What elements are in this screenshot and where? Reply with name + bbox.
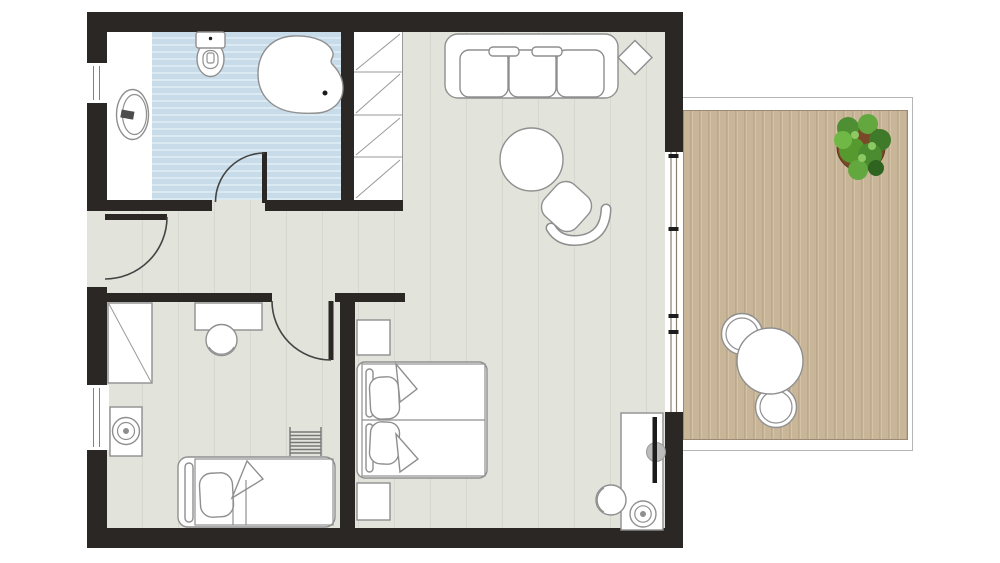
kids-lamp-table bbox=[110, 407, 142, 456]
sliding-door-handle bbox=[669, 314, 679, 318]
terrace-table bbox=[737, 328, 803, 394]
kids-room-door bbox=[272, 301, 334, 360]
terrace-seating bbox=[722, 314, 804, 428]
closet-shelves bbox=[354, 34, 402, 198]
door-swing-arc bbox=[272, 301, 331, 360]
sofa-pillow bbox=[532, 47, 562, 56]
pillow bbox=[369, 376, 400, 419]
plant-highlight bbox=[851, 131, 859, 139]
door-swing-arc bbox=[105, 217, 167, 279]
door-swing-arc bbox=[216, 153, 265, 202]
toilet-button bbox=[209, 37, 212, 40]
sliding-door-handle bbox=[669, 227, 679, 231]
entry-door bbox=[105, 214, 167, 279]
shelf-diagonal bbox=[356, 74, 400, 113]
floor-plan bbox=[0, 0, 1000, 563]
side-table-diamond bbox=[618, 41, 652, 75]
shelf-diagonal bbox=[356, 34, 400, 70]
headboard-bolster bbox=[185, 463, 193, 522]
kids-wardrobe bbox=[108, 303, 152, 383]
bathroom-door bbox=[216, 152, 268, 203]
shelf-diagonal bbox=[356, 160, 400, 198]
ladder-radiator bbox=[290, 427, 321, 456]
sofa-cushion bbox=[460, 50, 508, 97]
round-coffee-table bbox=[500, 128, 563, 191]
sofa-cushion bbox=[509, 50, 556, 97]
chair-seat bbox=[206, 325, 237, 356]
toilet bbox=[196, 32, 225, 77]
potted-plant bbox=[834, 114, 891, 180]
tv bbox=[653, 417, 658, 483]
sofa bbox=[445, 34, 618, 98]
chair-seat bbox=[596, 485, 626, 515]
bathtub-outline bbox=[258, 36, 343, 113]
sofa-cushion bbox=[557, 50, 604, 97]
door-leaf bbox=[105, 214, 167, 220]
shelf-diagonal bbox=[356, 118, 400, 155]
table-lamp-center bbox=[640, 511, 646, 517]
table-lamp-center bbox=[123, 428, 129, 434]
plant-foliage bbox=[848, 160, 868, 180]
bathtub bbox=[258, 36, 343, 113]
furniture-layer bbox=[0, 0, 1000, 563]
nightstand bbox=[357, 483, 390, 520]
door-leaf bbox=[329, 301, 334, 360]
plant-highlight bbox=[858, 154, 866, 162]
plant-foliage bbox=[834, 131, 852, 149]
double-bed bbox=[357, 362, 487, 478]
kids-desk-chair bbox=[206, 325, 237, 356]
pillow bbox=[199, 472, 234, 518]
sliding-door-handle bbox=[669, 154, 679, 158]
washbasin bbox=[117, 90, 149, 140]
media-console bbox=[621, 413, 666, 530]
plant-highlight bbox=[868, 142, 876, 150]
nightstand bbox=[357, 320, 390, 355]
single-bed bbox=[178, 457, 335, 527]
sliding-glass-door bbox=[669, 152, 679, 412]
plant-foliage bbox=[868, 160, 884, 176]
sliding-door-handle bbox=[669, 330, 679, 334]
pillow bbox=[369, 421, 400, 464]
door-leaf bbox=[262, 152, 267, 203]
sofa-pillow bbox=[489, 47, 519, 56]
console-chair bbox=[596, 485, 626, 515]
bathtub-drain bbox=[323, 91, 328, 96]
